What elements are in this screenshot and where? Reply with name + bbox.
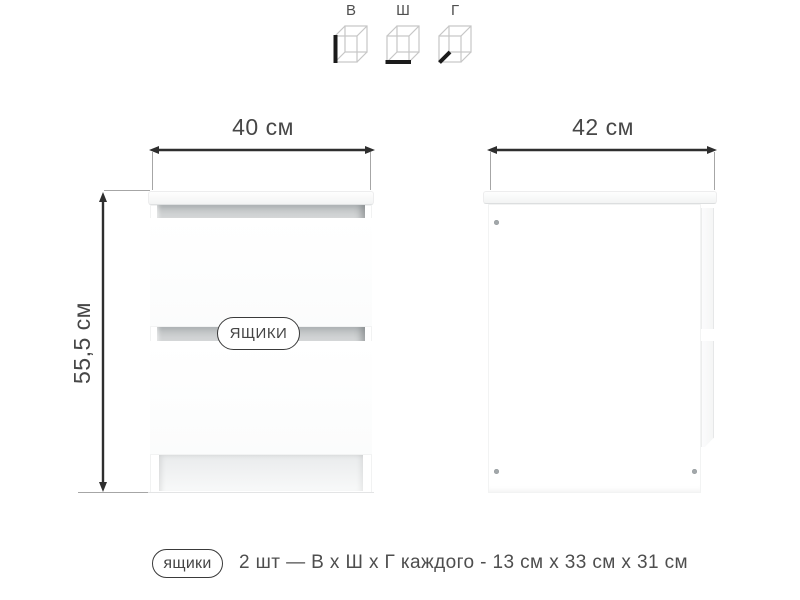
drawers-badge: ЯЩИКИ: [217, 317, 300, 350]
front-drawer-1: [150, 218, 372, 327]
front-width-extension-right: [370, 152, 371, 190]
footer-drawers-badge-label: ящики: [163, 555, 211, 573]
front-width-dimension-arrow: [149, 144, 375, 156]
dimension-legend: В Ш: [333, 2, 473, 64]
legend-label-height: В: [346, 2, 356, 19]
cube-depth-icon: [437, 24, 473, 64]
legend-item-height: В: [333, 2, 369, 64]
side-depth-extension-left: [490, 152, 491, 190]
side-top-panel: [483, 191, 717, 204]
legend-label-depth: Г: [451, 2, 459, 19]
drawers-badge-label: ЯЩИКИ: [230, 325, 288, 342]
front-base-recess: [159, 455, 363, 491]
furniture-dimension-diagram: В Ш: [0, 0, 800, 600]
side-depth-dimension-arrow: [487, 144, 717, 156]
front-top-panel: [148, 191, 374, 205]
screw-cap-bottom-left: [494, 469, 499, 474]
screw-cap-bottom-right: [692, 469, 697, 474]
front-width-extension-left: [152, 152, 153, 190]
side-drawer-edge-lower: [701, 341, 714, 447]
footer-drawers-badge: ящики: [152, 549, 223, 578]
nightstand-side-view: [483, 191, 717, 493]
screw-cap-top-left: [494, 220, 499, 225]
front-height-label: 55,5 см: [68, 293, 96, 393]
side-depth-label: 42 см: [488, 114, 718, 141]
front-width-label: 40 см: [150, 114, 376, 141]
front-height-extension-top: [104, 190, 150, 191]
front-drawer-2: [150, 341, 372, 455]
footer-description: 2 шт — В х Ш х Г каждого - 13 см х 33 см…: [239, 552, 688, 574]
legend-label-width: Ш: [396, 2, 410, 19]
legend-item-depth: Г: [437, 2, 473, 64]
side-drawer-edge-upper: [701, 208, 714, 329]
side-depth-extension-right: [714, 152, 715, 190]
front-height-dimension-arrow: [97, 192, 109, 492]
side-panel: [488, 204, 701, 493]
front-bottom-edge: [148, 492, 374, 493]
front-top-recess: [157, 205, 365, 218]
legend-item-width: Ш: [385, 2, 421, 64]
cube-height-icon: [333, 24, 369, 64]
cube-width-icon: [385, 24, 421, 64]
